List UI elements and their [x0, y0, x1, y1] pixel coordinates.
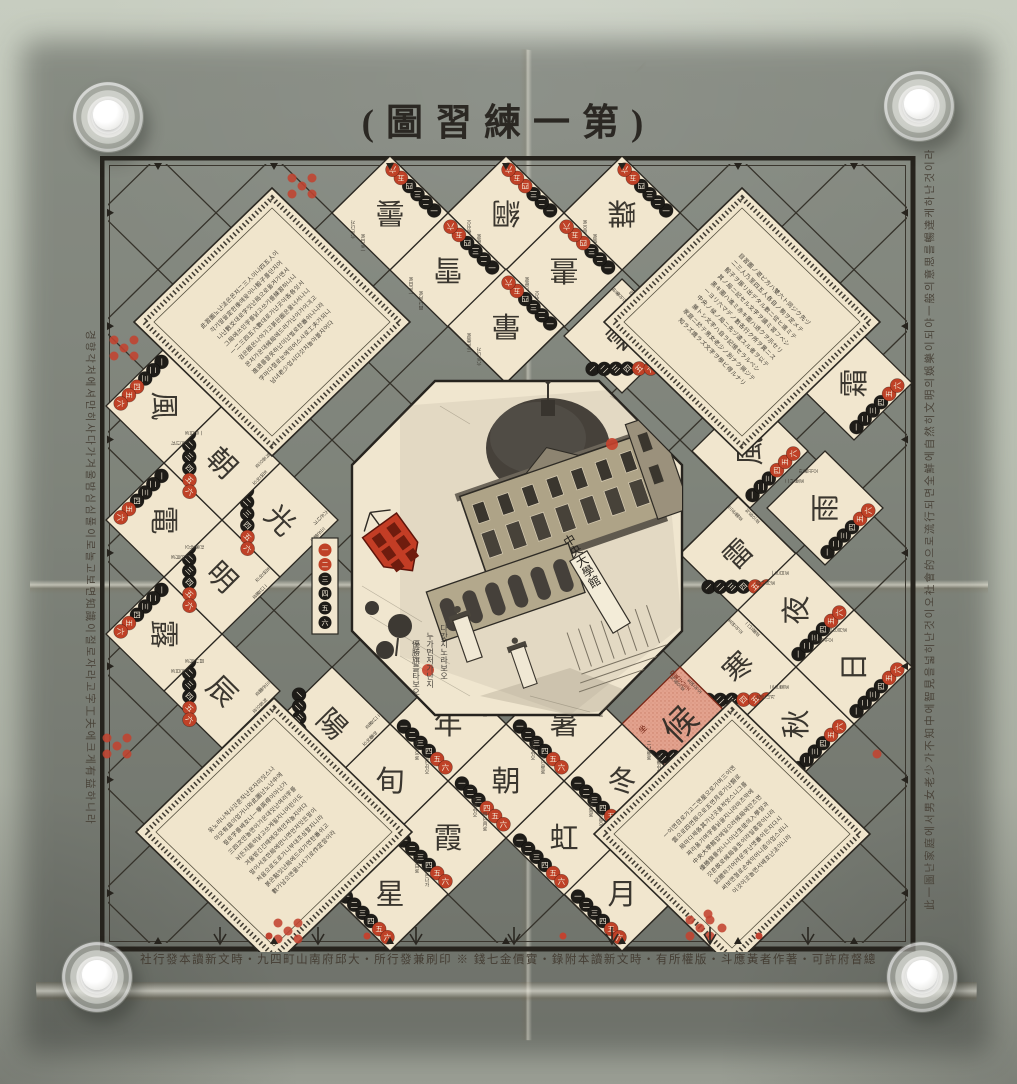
cell-note: 한番쉬오 [799, 469, 819, 474]
center-octagon: 中央大學館 다갓치노라보오 누가먼저가난지 優勝旗를타보오 [352, 378, 692, 715]
dice-numeral: 三 [764, 475, 773, 483]
dice-numeral: 四 [773, 466, 782, 474]
dice-numeral: 三 [839, 532, 848, 540]
cell-note: 四난月로 [756, 581, 776, 586]
quincunx-dot [110, 352, 119, 361]
cell-note: 一은日로 [409, 276, 414, 296]
dice-numeral: 三 [141, 603, 150, 611]
svg-text:누가먼저가난지: 누가먼저가난지 [425, 632, 434, 689]
quincunx-dot [686, 916, 695, 925]
cell-note: 三은雲로 [467, 332, 472, 352]
dice-numeral: 四 [132, 611, 141, 619]
dice-numeral: 六 [116, 514, 126, 522]
dice-numeral: 六 [834, 722, 844, 730]
dice-numeral: 六 [446, 222, 454, 232]
dice-numeral: 五 [322, 605, 329, 613]
dice-numeral: 三 [810, 748, 819, 756]
cell-note: 六은나가 [755, 695, 776, 700]
dice-numeral: 三 [359, 908, 367, 917]
quincunx-dot [123, 750, 132, 759]
quincunx-dot [130, 352, 139, 361]
cell-note: 한番쉬오 [814, 638, 834, 643]
red-dot [718, 924, 727, 933]
quincunx-dot [298, 182, 307, 191]
cell-note: 一은日로 [170, 668, 190, 673]
push-pin-bottom-right [886, 941, 958, 1013]
svg-text:優勝旗를타보오: 優勝旗를타보오 [411, 639, 420, 696]
cell-character: 風 [147, 391, 179, 420]
dice-numeral: 四 [579, 238, 587, 247]
cell-character: 霜 [839, 368, 871, 397]
cell-character: 曇 [375, 196, 404, 228]
cell-note: 한番쉬오 [184, 544, 204, 549]
cell-note: 처음으로 [414, 740, 419, 760]
dice-numeral: 六 [558, 876, 566, 886]
dice-numeral: 四 [819, 739, 828, 747]
cell-note: 三은雲로 [588, 798, 593, 818]
cell-note: 四난月로 [482, 812, 487, 832]
cell-note: 四난月로 [170, 554, 190, 559]
dice-numeral: 三 [533, 852, 541, 861]
start-strip-cell: 一二三四五六 [312, 538, 338, 634]
dice-numeral: 三 [868, 407, 877, 415]
dice-numeral: 二 [322, 561, 329, 569]
dice-numeral: 四 [521, 294, 529, 303]
cell-note: 一은日로 [361, 233, 366, 253]
dice-numeral: 四 [463, 238, 471, 247]
dice-numeral: 三 [530, 303, 538, 312]
dice-numeral: 三 [588, 247, 596, 256]
quincunx-dot [123, 734, 132, 743]
dice-numeral: 四 [541, 861, 549, 870]
quincunx-dot [103, 734, 112, 743]
cell-character: 旬 [375, 765, 404, 798]
quincunx-dot [110, 336, 119, 345]
dice-numeral: 六 [116, 628, 126, 636]
cell-note: 六은나가 [424, 867, 429, 888]
quincunx-dot [686, 932, 695, 941]
dice-numeral: 四 [132, 383, 141, 391]
border-red-dot [560, 933, 567, 940]
dice-numeral: 四 [848, 523, 857, 531]
cell-character: 冬 [607, 765, 636, 798]
dice-numeral: 四 [637, 181, 645, 190]
dice-numeral: 六 [442, 762, 450, 772]
dice-numeral: 三 [141, 489, 150, 497]
dice-numeral: 六 [863, 506, 873, 514]
dice-numeral: 四 [599, 917, 607, 926]
dice-numeral: 四 [521, 181, 529, 190]
dice-numeral: 六 [788, 449, 798, 457]
quincunx-dot [130, 336, 139, 345]
quincunx-dot [294, 935, 303, 944]
dice-numeral: 四 [322, 590, 329, 598]
cell-note: 一은日로 [770, 571, 790, 576]
cell-note: 二난星로 [646, 741, 651, 761]
cell-character: 晝 [549, 253, 578, 286]
dice-numeral: 六 [504, 278, 512, 288]
cell-character: 虹 [549, 822, 578, 855]
dice-numeral: 六 [834, 608, 844, 616]
cell-note: 四난月로 [419, 290, 424, 310]
quincunx-dot [120, 344, 129, 353]
quincunx-dot [294, 919, 303, 928]
dice-numeral: 四 [819, 625, 828, 633]
border-red-dot [266, 933, 273, 940]
board-svg: 曇一二三四五六一은日로六은나가綱一二三四五六二난星로한番쉬오蝶一二三四五六三은雲… [100, 156, 916, 952]
quincunx-dot [113, 742, 122, 751]
quincunx-dot [308, 174, 317, 183]
dice-numeral: 三 [868, 691, 877, 699]
dice-numeral: 四 [877, 398, 886, 406]
quincunx-dot [274, 919, 283, 928]
dice-numeral: 三 [591, 908, 599, 917]
dice-numeral: 六 [116, 400, 126, 408]
dice-numeral: 三 [472, 247, 480, 256]
photo-of-game-sheet: { "photo": { "wall_color": "#b9bfb2", "p… [0, 0, 1017, 1084]
cell-note: 六은나가 [477, 345, 482, 366]
dice-numeral: 三 [530, 190, 538, 199]
cell-character: 日 [839, 652, 871, 681]
svg-text:다갓치노라보오: 다갓치노라보오 [439, 624, 448, 680]
cell-note: 五면쉬오 [530, 741, 535, 761]
dice-numeral: 六 [322, 618, 329, 627]
dice-numeral: 四 [877, 682, 886, 690]
dice-numeral: 三 [414, 190, 422, 199]
cell-note: 一은日로 [184, 430, 204, 435]
dice-numeral: 六 [892, 381, 902, 389]
red-dot-on-dome [606, 438, 618, 450]
sheet-title: (圖習練一第) [0, 92, 1017, 146]
push-pin-top-left [72, 81, 144, 153]
quincunx-dot [288, 190, 297, 199]
bottom-fold-crease [36, 982, 980, 1002]
push-pin-bottom-left [61, 941, 133, 1013]
cell-character: 雨 [810, 493, 842, 522]
dice-numeral: 三 [646, 190, 654, 199]
border-red-dot [364, 933, 371, 940]
cell-character: 秋 [780, 709, 813, 738]
cell-character: 星 [375, 879, 404, 911]
red-dot [704, 910, 713, 919]
cell-note: 五면쉬오 [424, 755, 429, 775]
dice-numeral: 一 [322, 547, 329, 555]
game-sheet-paper: (圖習練一第) 曇一二三四五六一은日로六은나가綱一二三四五六二난星로한番쉬오蝶一… [0, 0, 1017, 1084]
dice-numeral: 四 [367, 917, 375, 926]
cell-note: 一은日로 [414, 854, 419, 874]
right-margin-note: 此一圖난家庭에서男女老少가不知中에智見을넓히난것이오社會的으로流行되면全鮮에自然… [922, 150, 946, 910]
publisher-colophon: 社行發本讀新文時・九四町山南府邱大・所行發兼刷印 ※ 錢七金價實・錄附本讀新文時… [0, 951, 1017, 967]
cell-note: 한番쉬오 [472, 798, 477, 818]
dice-numeral: 六 [500, 819, 508, 829]
push-pin-top-right [883, 70, 955, 142]
dice-numeral: 四 [405, 181, 413, 190]
dice-numeral: 六 [442, 876, 450, 886]
dice-numeral: 四 [132, 497, 141, 505]
quincunx-dot [284, 927, 293, 936]
quincunx-dot [308, 190, 317, 199]
cell-character: 蝶 [607, 196, 636, 229]
dice-numeral: 六 [558, 762, 566, 772]
cell-character: 霞 [433, 823, 462, 855]
cell-character: 朝 [491, 765, 520, 798]
cell-character: 暈 [491, 309, 520, 341]
cell-character: 綱 [491, 196, 520, 229]
cell-note: 四난月로 [184, 658, 204, 663]
quincunx-dot [696, 924, 705, 933]
red-dot [873, 750, 882, 759]
dice-numeral: 三 [322, 576, 329, 584]
border-red-dot [756, 933, 763, 940]
left-margin-note: 경향각처에셔만히사다가겨울밤심심풀이로놀고보면知識이절로자라고字工夫에크게有益하… [74, 330, 98, 790]
cell-note: 六은나가 [169, 440, 190, 445]
cell-character: 夜 [780, 595, 813, 624]
cell-character: 雪 [433, 253, 462, 285]
cell-note: 三은雲로 [770, 685, 790, 690]
cell-character: 電 [147, 505, 179, 534]
cell-note: 二난星로 [785, 479, 805, 484]
cell-note: 四난月로 [828, 628, 848, 633]
quincunx-dot [103, 750, 112, 759]
cell-character: 露 [147, 619, 179, 648]
cell-character: 月 [607, 879, 636, 911]
quincunx-dot [288, 174, 297, 183]
cell-note: 二난星로 [540, 755, 545, 775]
dice-numeral: 六 [562, 222, 570, 232]
cell-note: 六은나가 [351, 218, 356, 239]
dice-numeral: 六 [892, 665, 902, 673]
dice-numeral: 三 [141, 375, 150, 383]
